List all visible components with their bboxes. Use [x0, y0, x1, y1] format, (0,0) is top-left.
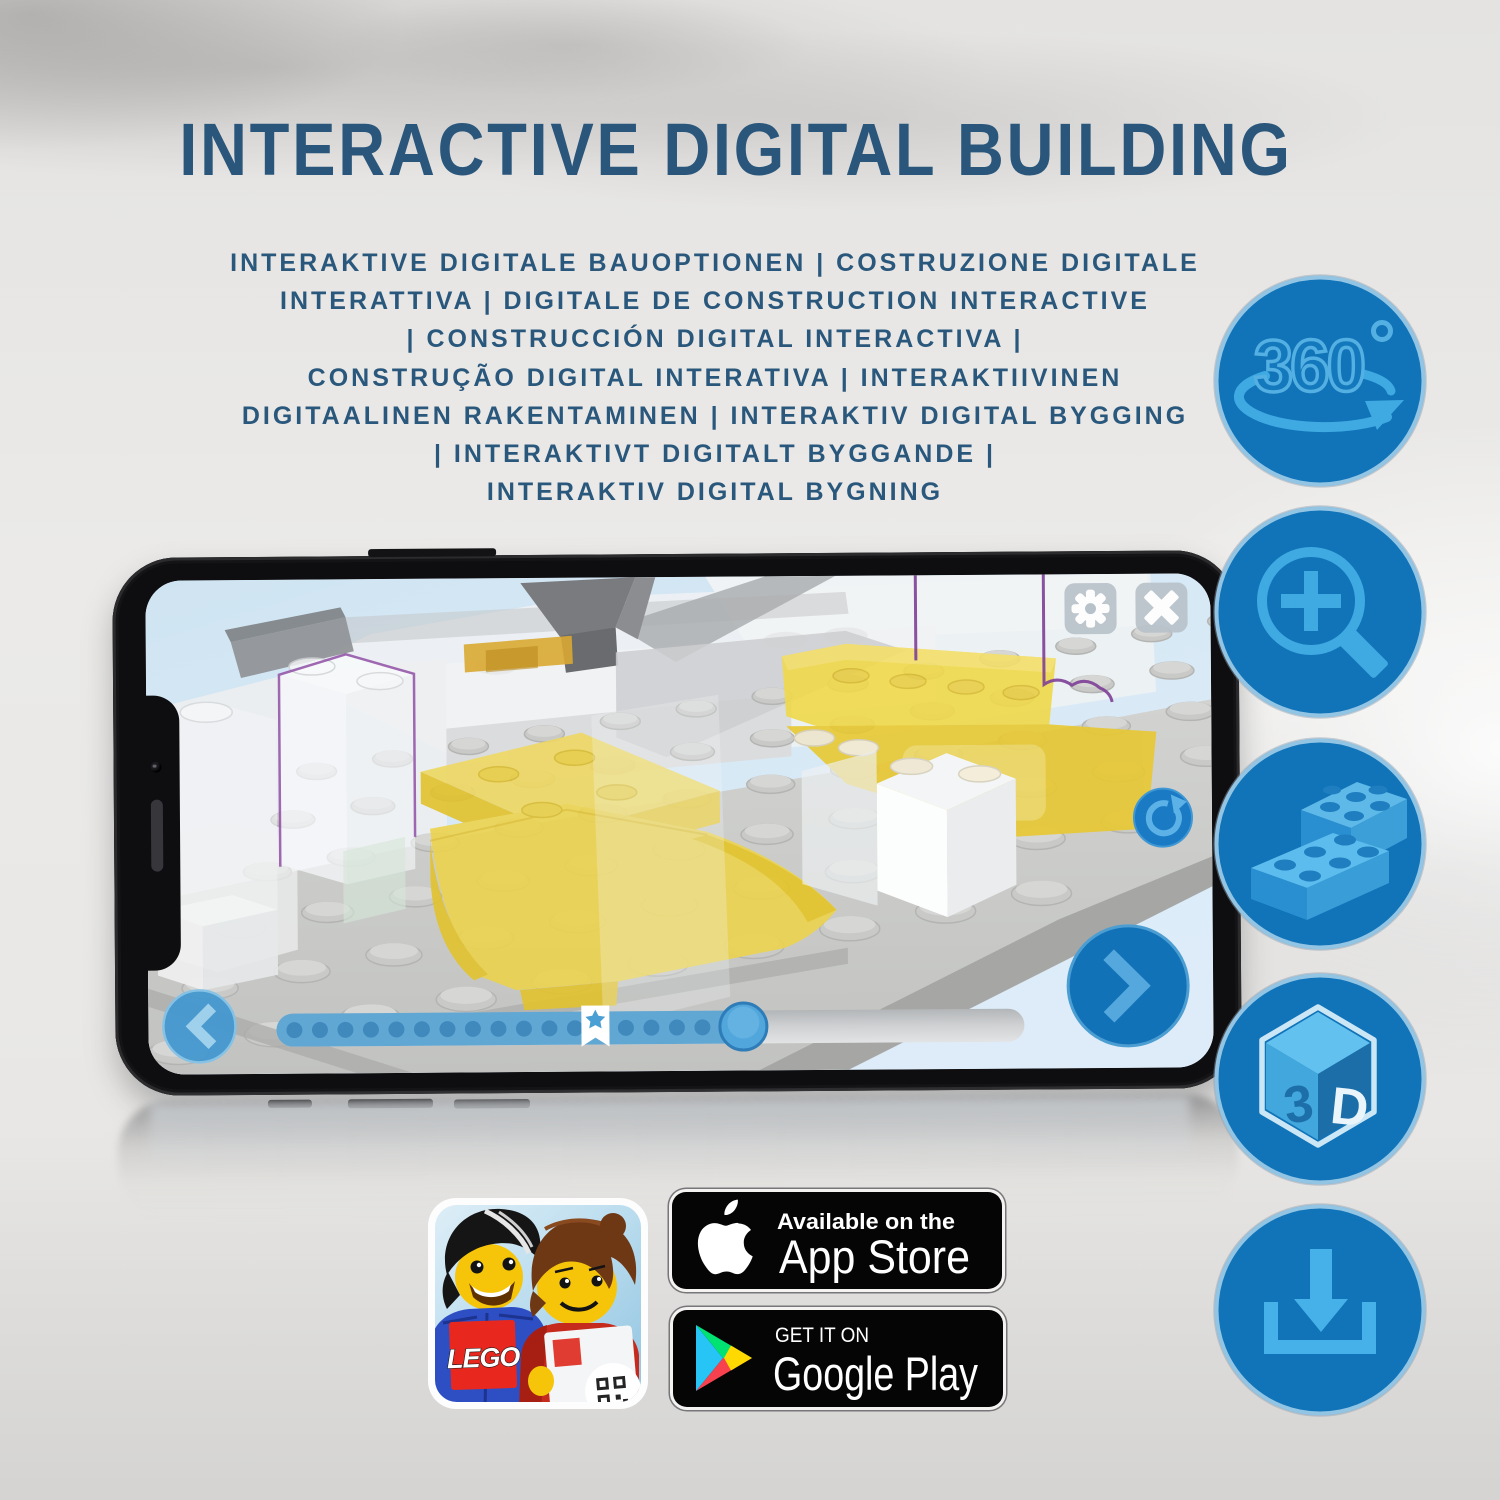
svg-text:Google Play: Google Play: [773, 1347, 978, 1400]
svg-text:360: 360: [1254, 326, 1364, 407]
svg-text:App Store: App Store: [779, 1230, 970, 1283]
svg-text:D: D: [1328, 1077, 1371, 1139]
svg-text:LEGO: LEGO: [446, 1342, 521, 1375]
svg-text:GET IT ON: GET IT ON: [775, 1324, 869, 1347]
